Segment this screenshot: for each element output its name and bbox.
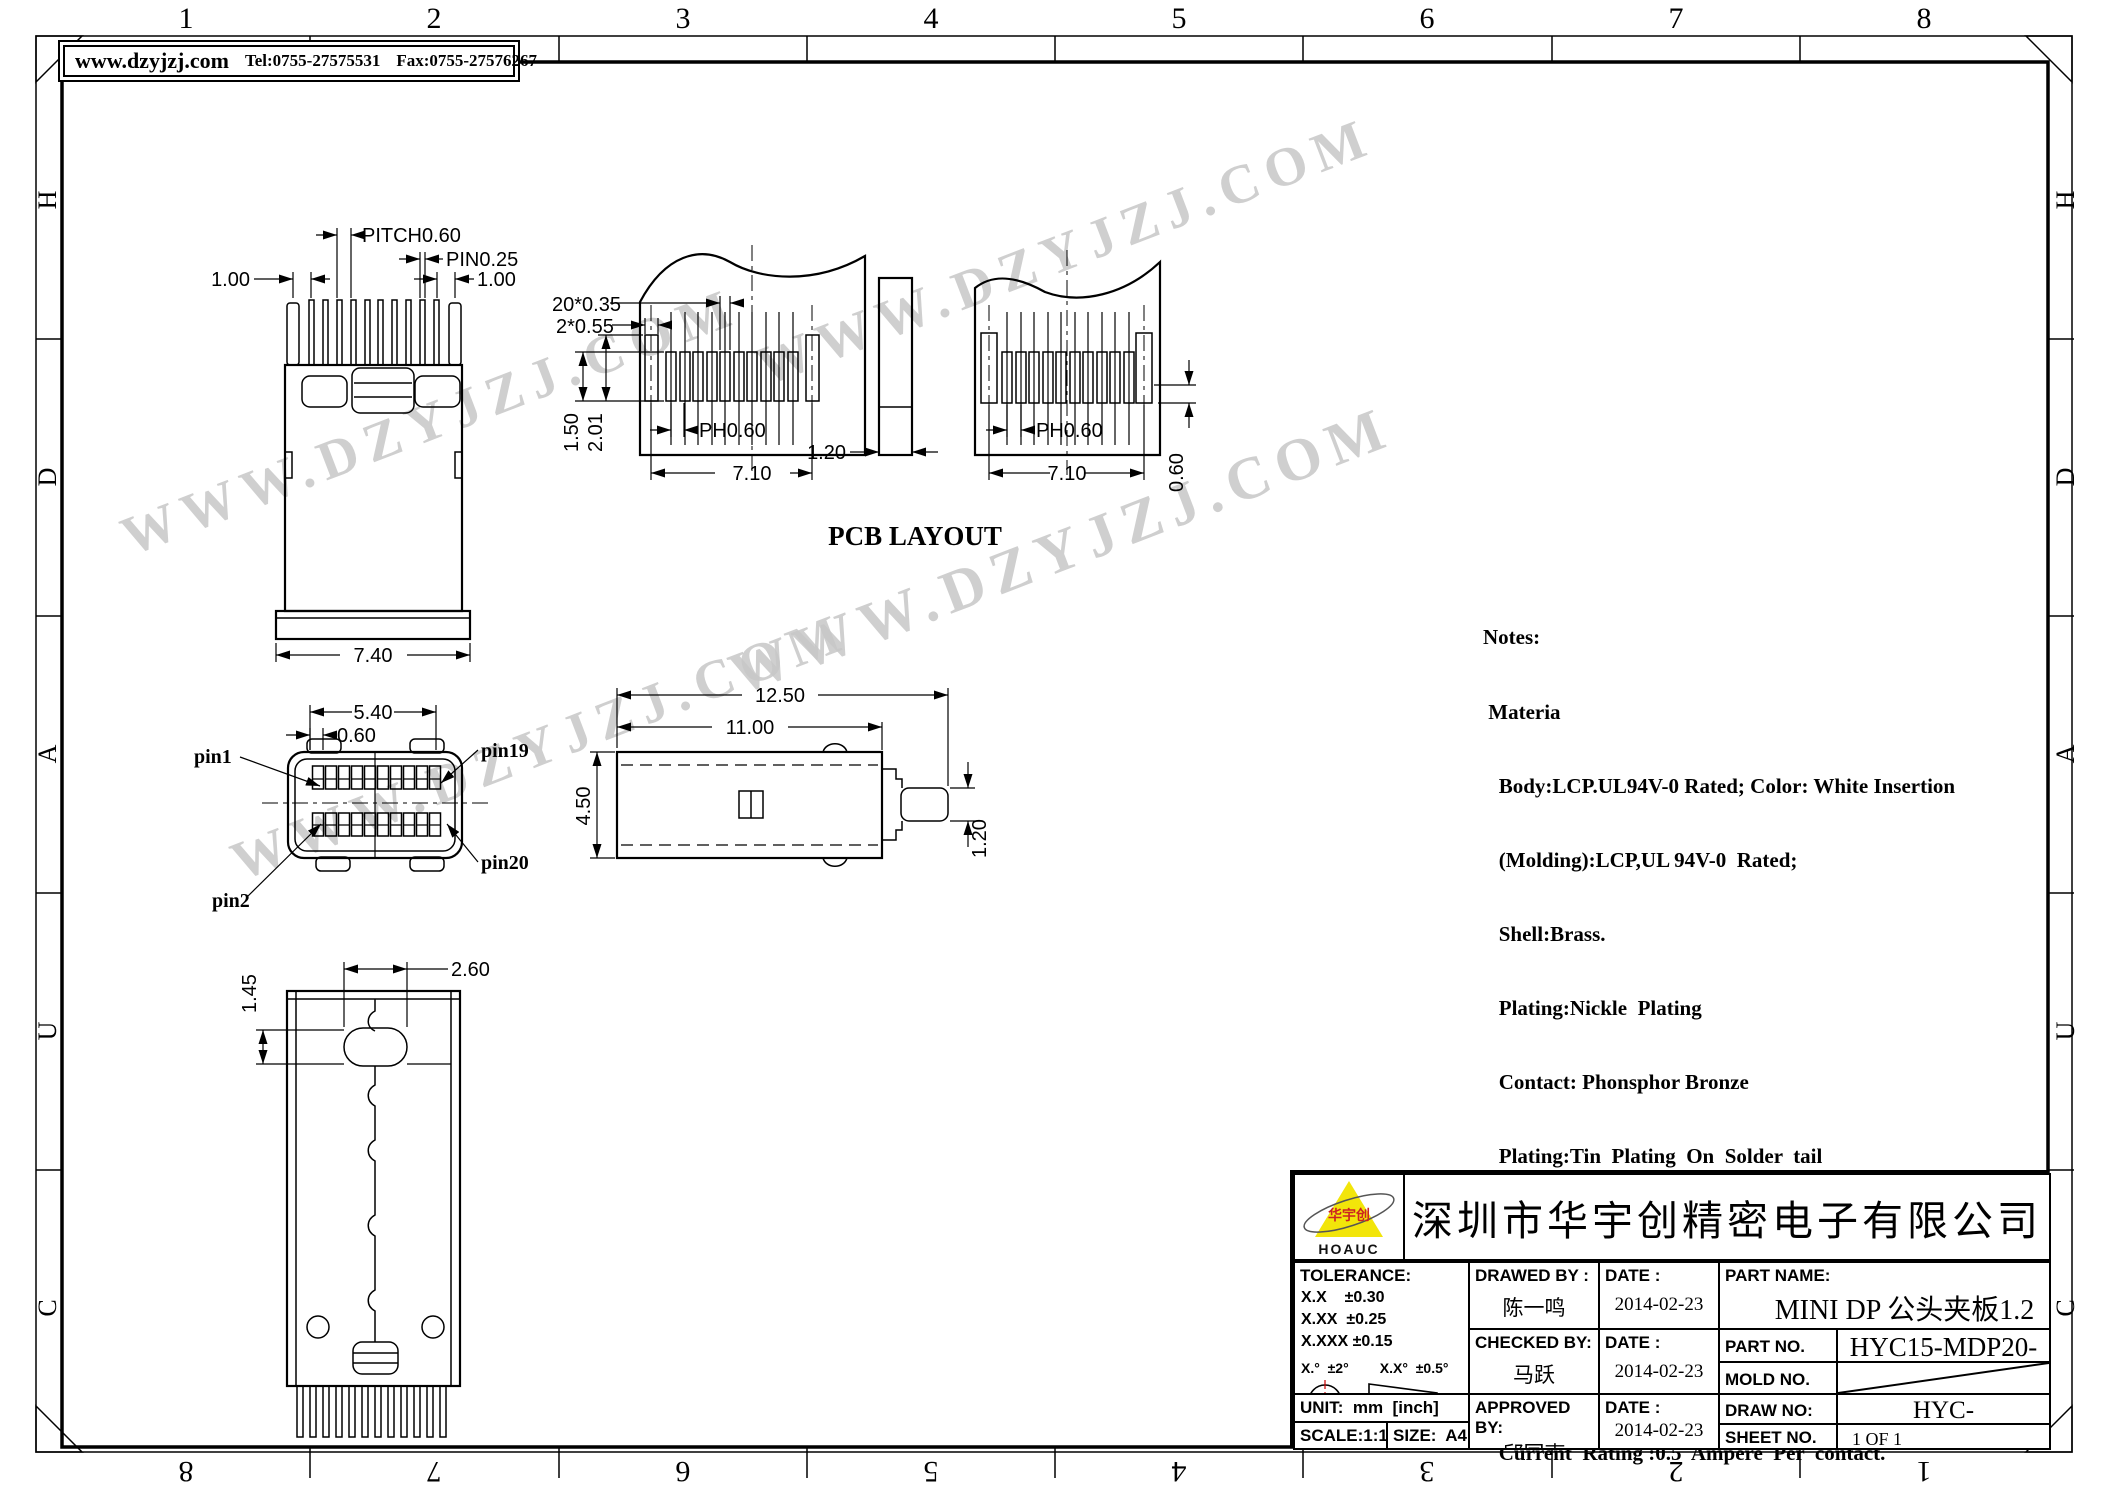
zone-row-left-c: C xyxy=(33,1294,61,1322)
mold-no-value-cell xyxy=(1836,1361,2051,1395)
dim-pad-h1: 1.50 xyxy=(561,413,583,452)
dim-front-pin-width: 0.60 xyxy=(337,725,376,747)
zone-row-right-c: C xyxy=(2051,1294,2079,1322)
part-name-label: PART NAME: xyxy=(1720,1263,2049,1286)
unit-label: UNIT: mm [inch] xyxy=(1295,1395,1468,1418)
dim-margin-right: 1.00 xyxy=(477,269,516,291)
logo-brand-text: HOAUC xyxy=(1318,1241,1379,1257)
note-line: Plating:Tin Plating On Solder tail xyxy=(1483,1144,1955,1169)
side-view-drawing: 12.50 11.00 4.50 1.20 xyxy=(573,685,991,866)
logo-cell: 华宇创 HOAUC xyxy=(1293,1173,1405,1261)
draw-no-label: DRAW NO: xyxy=(1720,1398,1836,1421)
tolerance-row: X.XXX ±0.15 xyxy=(1295,1332,1468,1352)
contact-header-box: www.dzyjzj.com Tel:0755-27575531 Fax:075… xyxy=(58,40,520,82)
pcb-side-slab-drawing: 1.20 xyxy=(807,278,938,464)
dim-pad-pitch-right: PH0.60 xyxy=(1036,420,1103,442)
approved-by-name: 邱国夷 xyxy=(1470,1438,1598,1450)
title-block: 华宇创 HOAUC 深圳市华宇创精密电子有限公司 TOLERANCE: X.X … xyxy=(1290,1170,2048,1447)
mold-no-label: MOLD NO. xyxy=(1720,1367,1836,1390)
zone-row-left-h: H xyxy=(33,186,61,214)
note-line: Body:LCP.UL94V-0 Rated; Color: White Ins… xyxy=(1483,774,1955,799)
company-logo: 华宇创 HOAUC xyxy=(1295,1175,1403,1259)
dim-pcb-thickness: 1.20 xyxy=(807,442,846,464)
drawn-by-label: DRAWED BY : xyxy=(1470,1263,1598,1286)
part-no-value-cell: HYC15-MDP20-120 xyxy=(1836,1328,2051,1363)
zone-col-bottom-3: 6 xyxy=(668,1454,698,1488)
approved-by-label: APPROVED BY: xyxy=(1470,1395,1598,1438)
size-cell: SIZE: A4 xyxy=(1386,1421,1470,1450)
tolerance-angles: X.° ±2° X.X° ±0.5° xyxy=(1295,1360,1468,1376)
drawn-date: 2014-02-23 xyxy=(1600,1294,1718,1316)
zone-col-6: 6 xyxy=(1412,2,1442,36)
zone-col-8: 8 xyxy=(1909,2,1939,36)
date-label: DATE : xyxy=(1600,1330,1718,1353)
dim-hole-height: 1.45 xyxy=(239,974,261,1013)
scale-label: SCALE:1:1 xyxy=(1295,1423,1386,1446)
approved-date: 2014-02-23 xyxy=(1600,1420,1718,1442)
zone-col-bottom-5: 4 xyxy=(1164,1454,1194,1488)
sheet-no-value: 1 OF 1 xyxy=(1852,1429,2049,1450)
date-label: DATE : xyxy=(1600,1395,1718,1418)
dim-pad-pitch: PH0.60 xyxy=(699,420,766,442)
zone-row-left-a: A xyxy=(33,740,61,768)
zone-col-1: 1 xyxy=(171,2,201,36)
tolerance-row: X.XX ±0.25 xyxy=(1295,1310,1468,1330)
part-no-label-cell: PART NO. xyxy=(1718,1328,1838,1363)
sheet-no-value-cell: 1 OF 1 xyxy=(1836,1423,2051,1450)
top-view-drawing: 7.40 PITCH0.60 PIN0.25 1.00 1.00 xyxy=(211,225,518,667)
drawn-date-cell: DATE : 2014-02-23 xyxy=(1598,1261,1720,1330)
sheet-no-label-cell: SHEET NO. xyxy=(1718,1423,1838,1450)
note-line: Materia xyxy=(1483,700,1955,725)
sheet-no-label: SHEET NO. xyxy=(1720,1425,1836,1448)
tolerance-row: X.X ±0.30 xyxy=(1295,1288,1468,1308)
company-name: 深圳市华宇创精密电子有限公司 xyxy=(1412,1187,2042,1247)
mold-no-label-cell: MOLD NO. xyxy=(1718,1361,1838,1395)
zone-col-7: 7 xyxy=(1661,2,1691,36)
part-no-label: PART NO. xyxy=(1720,1334,1836,1357)
part-name-cell: PART NAME: MINI DP 公头夹板1.2 xyxy=(1718,1261,2051,1330)
part-name-value: MINI DP 公头夹板1.2 xyxy=(1720,1288,2049,1328)
dim-height: 4.50 xyxy=(573,787,595,826)
company-name-cell: 深圳市华宇创精密电子有限公司 xyxy=(1403,1173,2051,1261)
checked-by-label: CHECKED BY: xyxy=(1470,1330,1598,1353)
zone-row-right-d: D xyxy=(2051,463,2079,491)
note-line: Shell:Brass. xyxy=(1483,922,1955,947)
approved-date-cell: DATE : 2014-02-23 xyxy=(1598,1393,1720,1450)
zone-row-right-u: U xyxy=(2051,1017,2079,1045)
drawn-by-name: 陈一鸣 xyxy=(1470,1292,1598,1322)
zone-col-bottom-4: 5 xyxy=(916,1454,946,1488)
label-pin2: pin2 xyxy=(212,890,250,912)
zone-row-right-a: A xyxy=(2051,740,2079,768)
zone-row-left-d: D xyxy=(33,463,61,491)
approved-by-cell: APPROVED BY: 邱国夷 xyxy=(1468,1393,1600,1450)
dim-pitch: PITCH0.60 xyxy=(362,225,461,247)
website-text: www.dzyjzj.com xyxy=(75,48,229,74)
drawing-sheet: WWW.DZYJZJ.COM WWW.DZYJZJ.COM WWW.DZYJZJ… xyxy=(0,0,2105,1488)
note-line: Plating:Nickle Plating xyxy=(1483,996,1955,1021)
logo-cn-text: 华宇创 xyxy=(1328,1207,1370,1223)
bottom-view-drawing: 1.45 2.60 xyxy=(239,959,490,1437)
checked-date: 2014-02-23 xyxy=(1600,1361,1718,1383)
mold-no-diagonal xyxy=(1838,1363,2049,1393)
dim-pad-span-right: 7.10 xyxy=(1048,463,1087,485)
dim-pads: 20*0.35 xyxy=(552,294,621,316)
checked-by-name: 马跃 xyxy=(1470,1359,1598,1389)
pcb-layout-caption: PCB LAYOUT xyxy=(828,521,1002,551)
label-pin20: pin20 xyxy=(481,852,529,874)
zone-col-bottom-6: 3 xyxy=(1412,1454,1442,1488)
zone-col-2: 2 xyxy=(419,2,449,36)
telephone-text: Tel:0755-27575531 xyxy=(245,51,380,71)
drawn-by-cell: DRAWED BY : 陈一鸣 xyxy=(1468,1261,1600,1330)
note-line: Contact: Phonsphor Bronze xyxy=(1483,1070,1955,1095)
draw-no-label-cell: DRAW NO: xyxy=(1718,1393,1838,1425)
fax-text: Fax:0755-27576267 xyxy=(396,51,537,71)
dim-body-length: 11.00 xyxy=(726,717,775,739)
dim-hole-width: 2.60 xyxy=(451,959,490,981)
part-no-value: HYC15-MDP20-120 xyxy=(1838,1332,2049,1363)
size-label: SIZE: A4 xyxy=(1388,1423,1468,1446)
front-view-drawing: 5.40 0.60 pin1 pin19 pin20 pin2 xyxy=(194,702,529,912)
scale-cell: SCALE:1:1 xyxy=(1293,1421,1388,1450)
dim-total-length: 12.50 xyxy=(755,685,805,707)
label-pin19: pin19 xyxy=(481,740,529,762)
tolerance-label: TOLERANCE: xyxy=(1295,1263,1468,1286)
note-line: Notes: xyxy=(1483,625,1955,650)
zone-col-4: 4 xyxy=(916,2,946,36)
pcb-layout-right-drawing: PH0.60 7.10 0.60 xyxy=(975,250,1196,492)
tolerance-cell: TOLERANCE: X.X ±0.30 X.XX ±0.25 X.XXX ±0… xyxy=(1293,1261,1470,1395)
dim-pad-h2: 2.01 xyxy=(585,413,607,452)
dim-tail-height: 1.20 xyxy=(969,819,991,858)
dim-pin-width: PIN0.25 xyxy=(446,249,518,271)
zone-col-3: 3 xyxy=(668,2,698,36)
dim-margin-left: 1.00 xyxy=(211,269,250,291)
unit-cell: UNIT: mm [inch] xyxy=(1293,1393,1470,1423)
draw-no-value: HYC-MDP17115013 xyxy=(1838,1397,2049,1425)
dim-body-width: 7.40 xyxy=(354,645,393,667)
label-pin1: pin1 xyxy=(194,746,232,768)
checked-date-cell: DATE : 2014-02-23 xyxy=(1598,1328,1720,1395)
dim-front-width: 5.40 xyxy=(354,702,393,724)
zone-col-5: 5 xyxy=(1164,2,1194,36)
zone-row-right-h: H xyxy=(2051,186,2079,214)
zone-col-bottom-1: 8 xyxy=(171,1454,201,1488)
dim-pad-span: 7.10 xyxy=(733,463,772,485)
zone-col-bottom-2: 7 xyxy=(419,1454,449,1488)
checked-by-cell: CHECKED BY: 马跃 xyxy=(1468,1328,1600,1395)
date-label: DATE : xyxy=(1600,1263,1718,1286)
dim-pad-offset: 0.60 xyxy=(1166,453,1188,492)
contact-header-inner: www.dzyjzj.com Tel:0755-27575531 Fax:075… xyxy=(63,45,515,77)
draw-no-value-cell: HYC-MDP17115013 xyxy=(1836,1393,2051,1425)
note-line: (Molding):LCP,UL 94V-0 Rated; xyxy=(1483,848,1955,873)
zone-row-left-u: U xyxy=(33,1017,61,1045)
